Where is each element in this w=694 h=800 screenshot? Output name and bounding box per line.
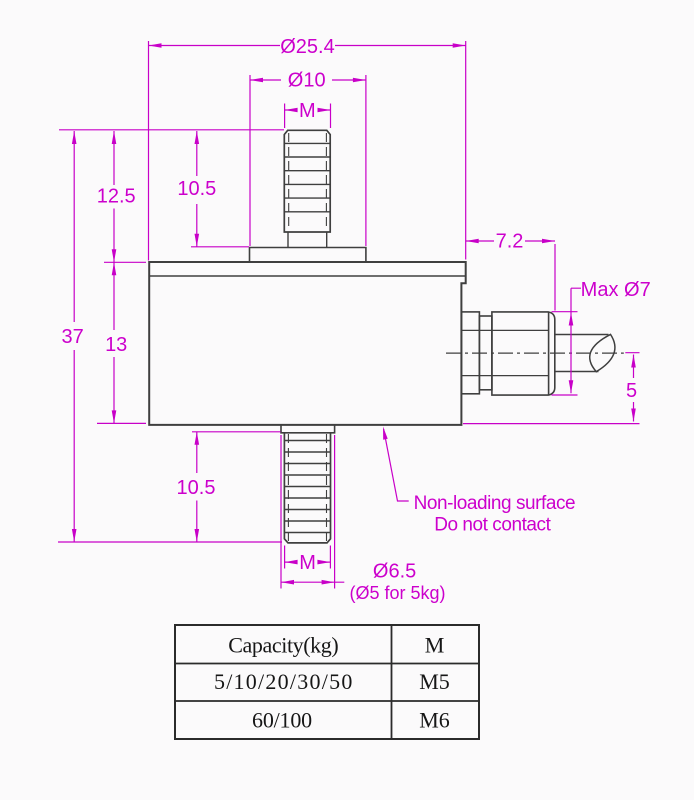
- svg-text:M: M: [299, 552, 316, 574]
- svg-text:Ø10: Ø10: [288, 70, 326, 92]
- svg-text:Ø6.5: Ø6.5: [373, 561, 416, 583]
- svg-text:Capacity(kg): Capacity(kg): [228, 633, 338, 658]
- svg-text:10.5: 10.5: [177, 477, 216, 499]
- svg-text:Ø25.4: Ø25.4: [280, 36, 334, 58]
- svg-text:5/10/20/30/50: 5/10/20/30/50: [214, 669, 354, 694]
- svg-text:13: 13: [105, 334, 127, 356]
- svg-text:10.5: 10.5: [177, 178, 216, 200]
- svg-text:Do not contact: Do not contact: [434, 514, 551, 535]
- svg-text:5: 5: [626, 380, 637, 402]
- svg-text:(Ø5 for 5kg): (Ø5 for 5kg): [349, 583, 445, 603]
- svg-text:Non-loading surface: Non-loading surface: [414, 493, 576, 514]
- svg-text:12.5: 12.5: [97, 185, 136, 207]
- svg-text:Max Ø7: Max Ø7: [581, 279, 651, 301]
- svg-text:37: 37: [61, 326, 83, 348]
- svg-text:M6: M6: [419, 707, 450, 732]
- svg-text:M5: M5: [419, 669, 450, 694]
- svg-text:7.2: 7.2: [496, 230, 524, 252]
- svg-text:M: M: [425, 633, 445, 658]
- svg-text:M: M: [299, 100, 316, 122]
- svg-text:60/100: 60/100: [252, 707, 312, 732]
